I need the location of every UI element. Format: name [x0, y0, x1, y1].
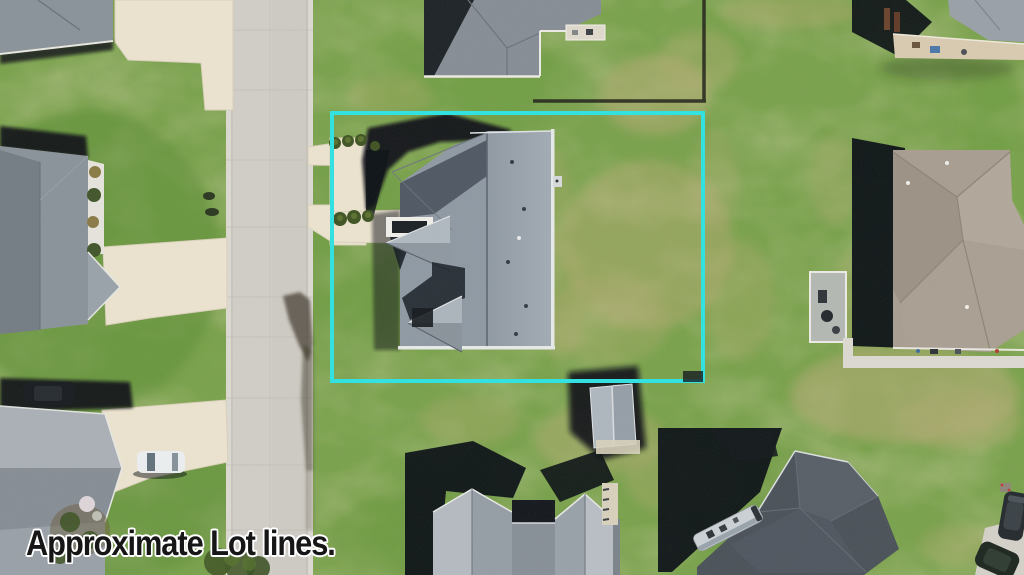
- lot-lines-caption: Approximate Lot lines.: [26, 524, 335, 564]
- aerial-lot-photo: Approximate Lot lines.: [0, 0, 1024, 575]
- aerial-photo-canvas: [0, 0, 1024, 575]
- photo-grain: [0, 0, 1024, 575]
